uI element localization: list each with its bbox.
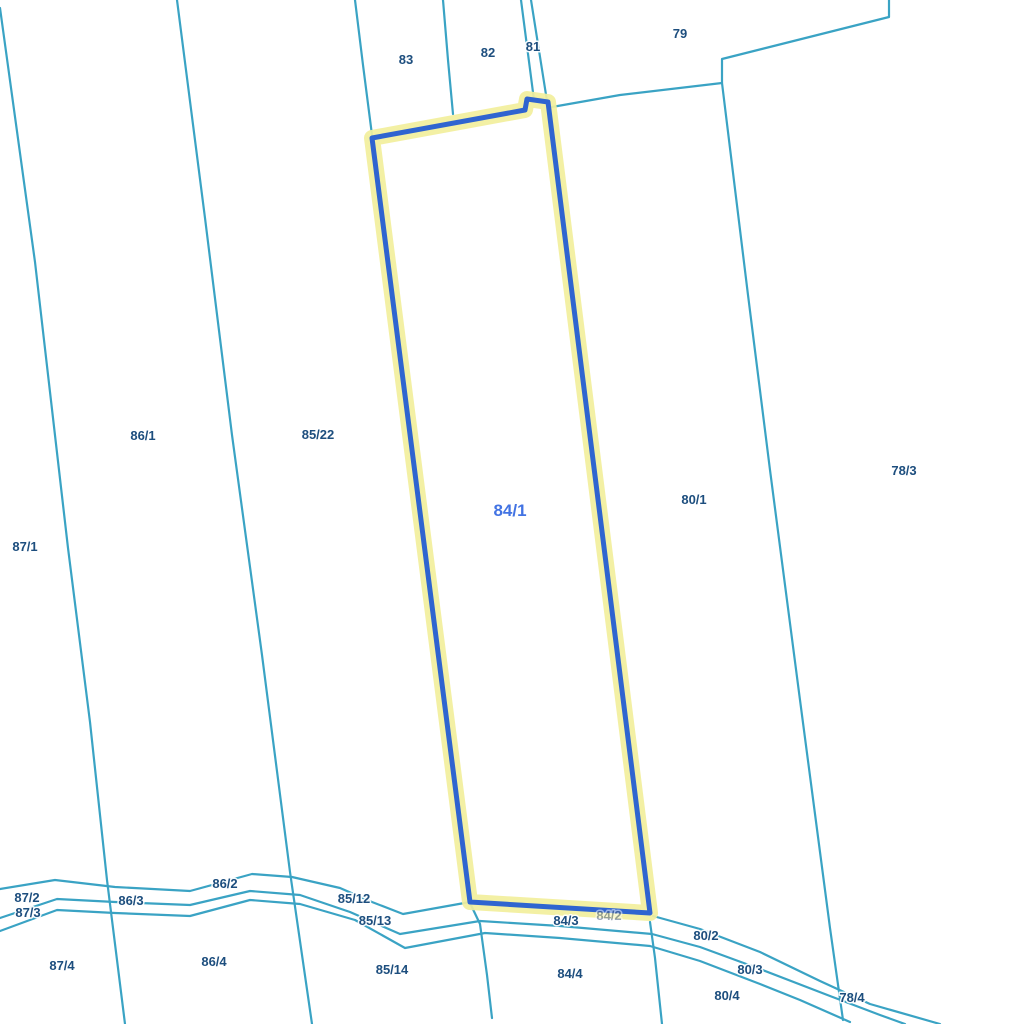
parcel-label-87-1[interactable]: 87/1 — [12, 539, 37, 554]
parcel-label-78-4[interactable]: 78/4 — [839, 990, 865, 1005]
parcel-label-84-2[interactable]: 84/2 — [596, 908, 621, 923]
parcel-label-87-4[interactable]: 87/4 — [49, 958, 75, 973]
boundary-line-83-82-top — [443, 0, 453, 114]
parcel-label-87-3[interactable]: 87/3 — [15, 905, 40, 920]
parcel-label-84-4[interactable]: 84/4 — [557, 966, 583, 981]
parcel-label-80-1[interactable]: 80/1 — [681, 492, 706, 507]
parcel-label-85-14[interactable]: 85/14 — [376, 962, 409, 977]
boundary-line-80-78 — [722, 83, 843, 1020]
cadastral-map-viewport[interactable]: 8382817986/185/2280/178/387/187/286/387/… — [0, 0, 1024, 1024]
parcel-label-79[interactable]: 79 — [673, 26, 687, 41]
parcel-label-86-3[interactable]: 86/3 — [118, 893, 143, 908]
selected-parcel-label[interactable]: 84/1 — [493, 501, 526, 520]
parcel-label-82[interactable]: 82 — [481, 45, 495, 60]
boundary-line-85-83-top — [355, 0, 372, 135]
parcel-label-80-2[interactable]: 80/2 — [693, 928, 718, 943]
parcel-label-85-13[interactable]: 85/13 — [359, 913, 392, 928]
parcel-label-86-2[interactable]: 86/2 — [212, 876, 237, 891]
boundary-west-line-87 — [0, 8, 125, 1024]
parcel-label-83[interactable]: 83 — [399, 52, 413, 67]
parcel-label-86-4[interactable]: 86/4 — [201, 954, 227, 969]
boundary-line-79-south-step — [552, 0, 889, 107]
parcel-label-85-12[interactable]: 85/12 — [338, 891, 371, 906]
parcel-label-80-4[interactable]: 80/4 — [714, 988, 740, 1003]
parcel-label-85-22[interactable]: 85/22 — [302, 427, 335, 442]
parcel-label-86-1[interactable]: 86/1 — [130, 428, 155, 443]
map-canvas[interactable]: 8382817986/185/2280/178/387/187/286/387/… — [0, 0, 1024, 1024]
boundary-line-86-85 — [177, 0, 312, 1024]
parcel-label-80-3[interactable]: 80/3 — [737, 962, 762, 977]
parcel-label-84-3[interactable]: 84/3 — [553, 913, 578, 928]
boundary-road-south-edge — [0, 900, 850, 1022]
parcel-label-78-3[interactable]: 78/3 — [891, 463, 916, 478]
parcel-label-87-2[interactable]: 87/2 — [14, 890, 39, 905]
parcel-label-81[interactable]: 81 — [526, 39, 540, 54]
